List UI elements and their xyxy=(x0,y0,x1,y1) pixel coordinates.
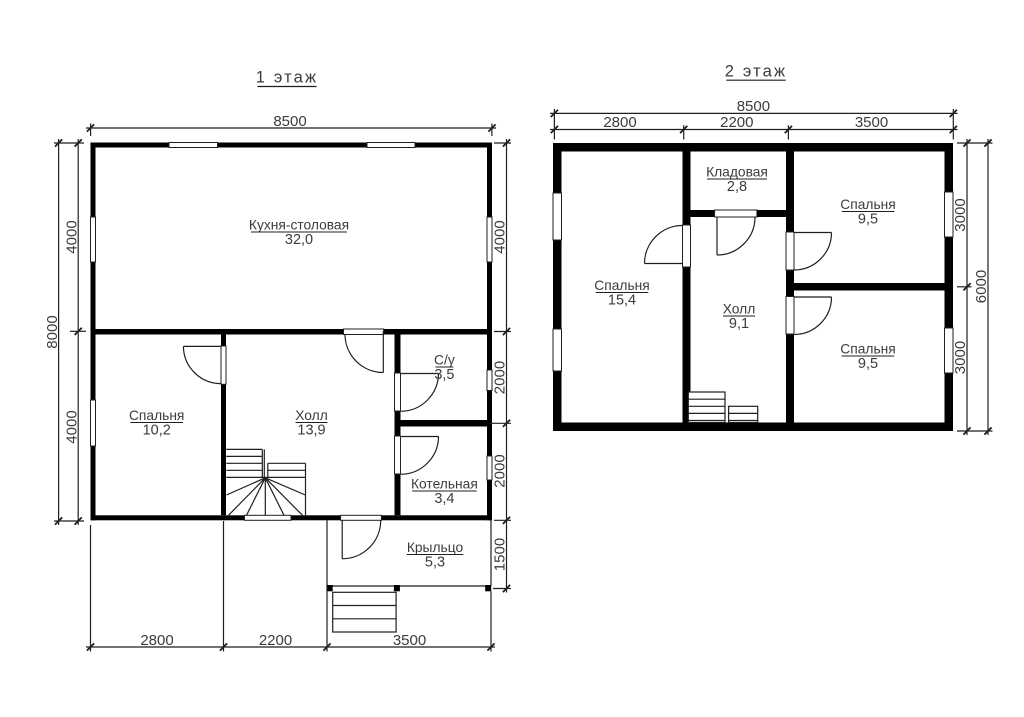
svg-text:3,4: 3,4 xyxy=(434,491,454,507)
svg-text:3500: 3500 xyxy=(855,114,888,131)
svg-text:10,2: 10,2 xyxy=(143,423,171,439)
svg-text:Кухня-столовая: Кухня-столовая xyxy=(249,218,349,233)
svg-text:Спальня: Спальня xyxy=(840,342,895,357)
svg-text:8500: 8500 xyxy=(737,98,770,115)
svg-text:8000: 8000 xyxy=(44,315,61,348)
svg-text:1500: 1500 xyxy=(492,538,509,571)
svg-text:3000: 3000 xyxy=(952,341,969,374)
svg-text:2800: 2800 xyxy=(140,632,173,649)
svg-text:4000: 4000 xyxy=(492,220,509,253)
svg-text:2 этаж: 2 этаж xyxy=(725,63,788,81)
svg-text:Крыльцо: Крыльцо xyxy=(407,540,464,555)
svg-text:3000: 3000 xyxy=(952,198,969,231)
svg-text:6000: 6000 xyxy=(973,270,990,303)
svg-text:2800: 2800 xyxy=(603,114,636,131)
svg-text:13,9: 13,9 xyxy=(297,423,325,439)
svg-text:4000: 4000 xyxy=(63,410,80,443)
svg-text:3,5: 3,5 xyxy=(434,367,454,383)
svg-text:2,8: 2,8 xyxy=(727,179,747,195)
svg-text:15,4: 15,4 xyxy=(608,293,636,309)
svg-text:1 этаж: 1 этаж xyxy=(256,68,319,86)
svg-text:2000: 2000 xyxy=(492,361,509,394)
svg-text:9,5: 9,5 xyxy=(858,356,878,372)
svg-text:Спальня: Спальня xyxy=(129,408,184,423)
svg-text:Спальня: Спальня xyxy=(840,197,895,212)
svg-text:Холл: Холл xyxy=(295,408,328,423)
svg-text:2200: 2200 xyxy=(720,114,753,131)
svg-text:3500: 3500 xyxy=(393,632,426,649)
svg-text:Кладовая: Кладовая xyxy=(706,165,768,180)
svg-text:Котельная: Котельная xyxy=(411,477,478,492)
svg-text:С/у: С/у xyxy=(434,353,455,368)
svg-text:8500: 8500 xyxy=(273,113,306,130)
svg-text:Холл: Холл xyxy=(723,302,756,317)
svg-text:32,0: 32,0 xyxy=(285,232,313,248)
svg-text:9,1: 9,1 xyxy=(729,316,749,332)
svg-text:Спальня: Спальня xyxy=(594,278,649,293)
svg-text:5,3: 5,3 xyxy=(425,555,445,571)
svg-text:2200: 2200 xyxy=(259,632,292,649)
svg-text:9,5: 9,5 xyxy=(858,212,878,228)
svg-text:4000: 4000 xyxy=(63,220,80,253)
svg-text:2000: 2000 xyxy=(492,454,509,487)
